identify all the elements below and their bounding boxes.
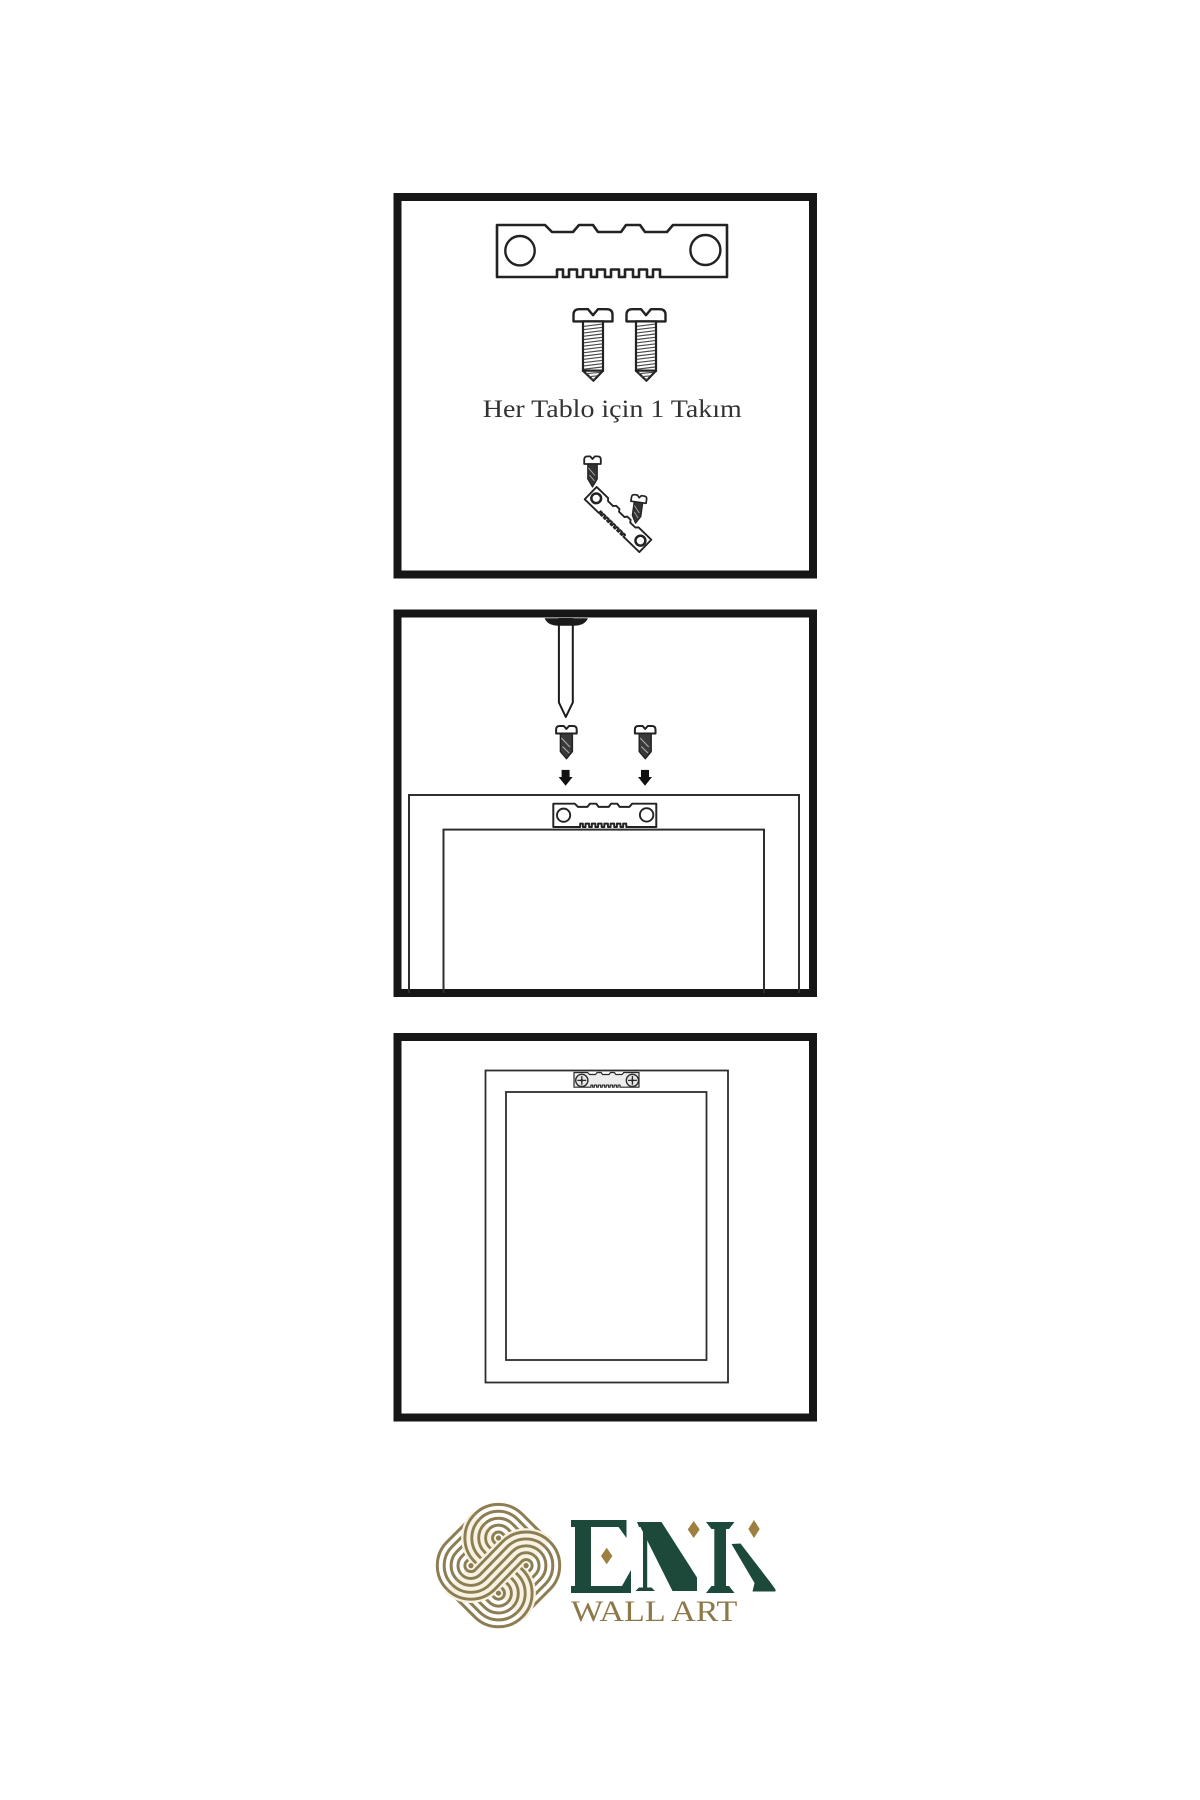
svg-text:WALL ART: WALL ART [571,1596,737,1628]
svg-text:Her Tablo için 1 Takım: Her Tablo için 1 Takım [483,396,742,423]
